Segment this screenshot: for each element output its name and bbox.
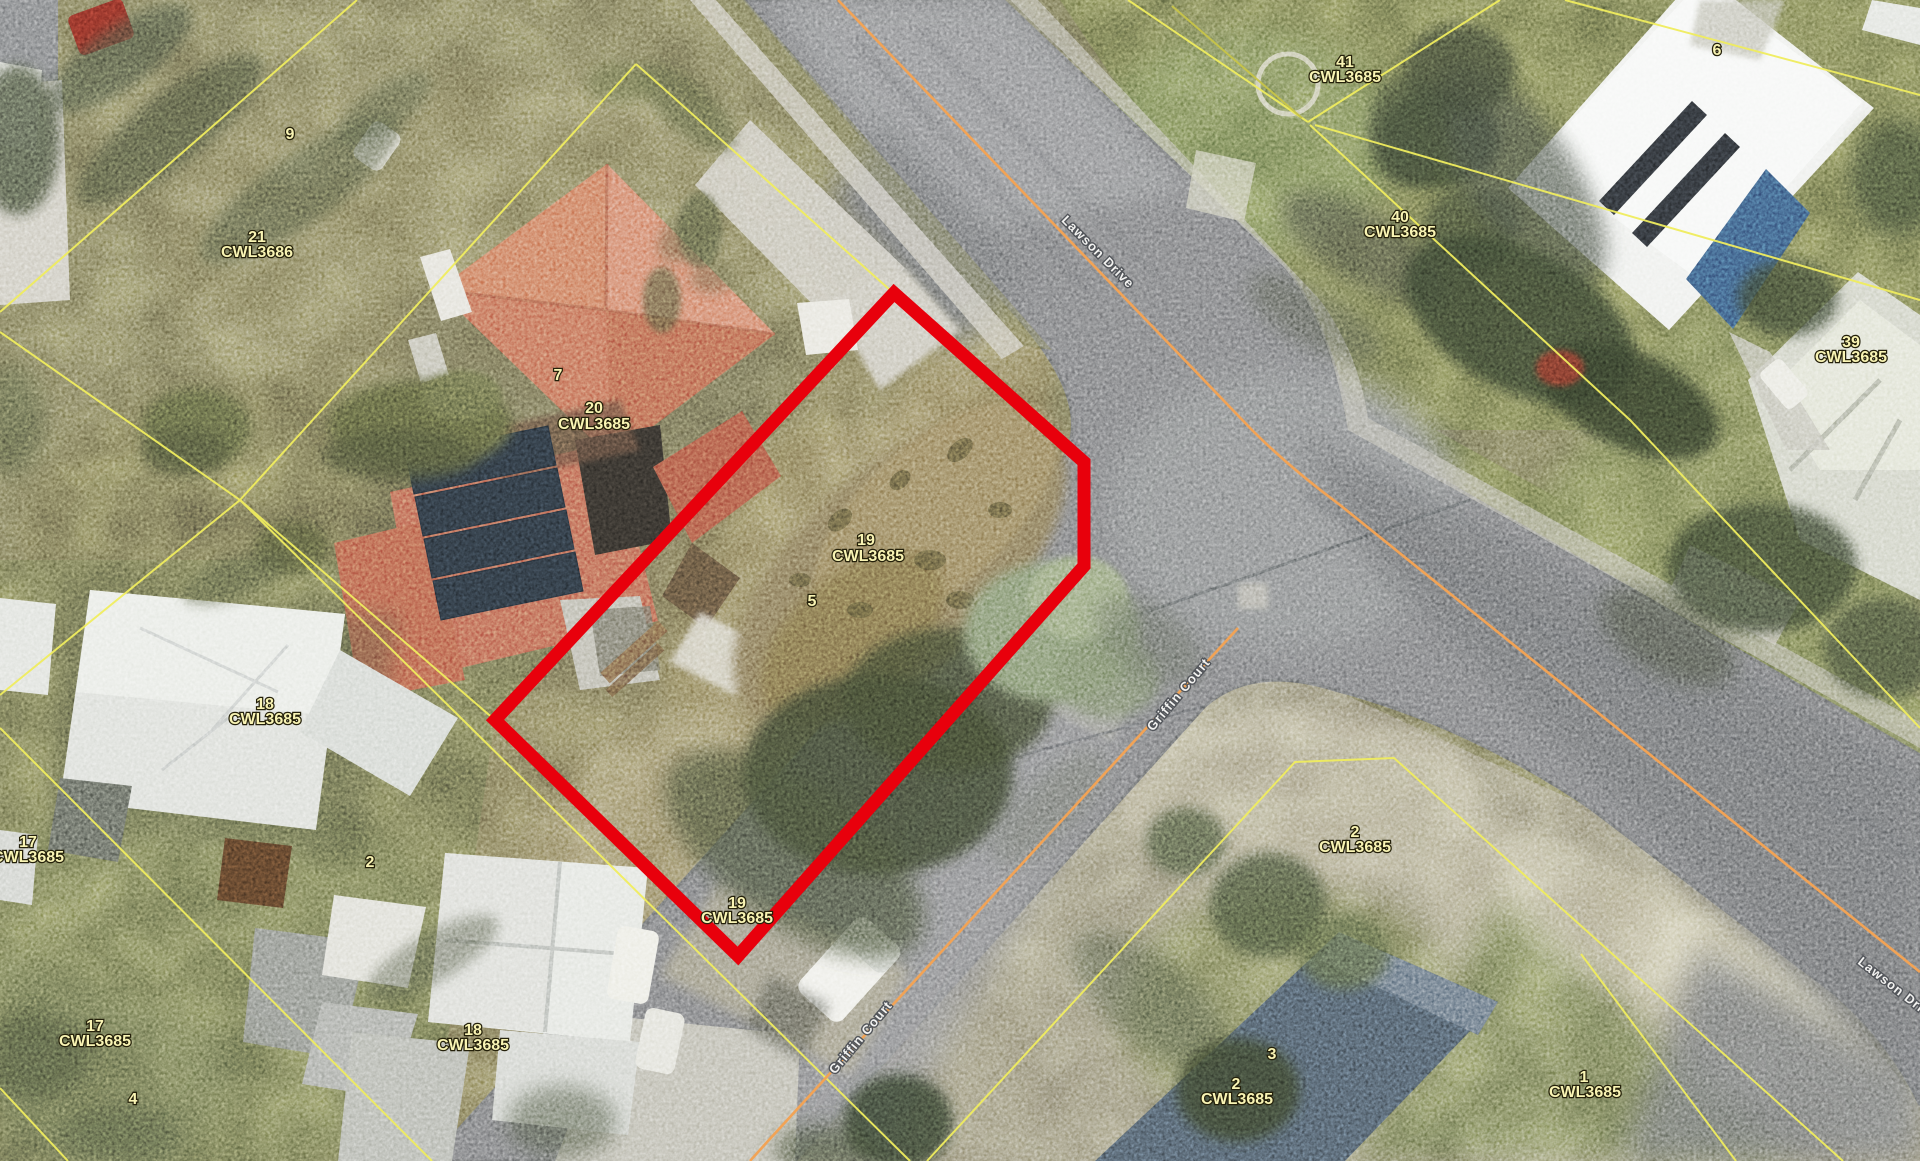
- svg-text:CWL3685: CWL3685: [1309, 69, 1381, 86]
- svg-text:6: 6: [1713, 42, 1722, 59]
- svg-text:CWL3685: CWL3685: [1364, 224, 1436, 241]
- svg-text:CWL3685: CWL3685: [1201, 1091, 1273, 1108]
- svg-text:20: 20: [585, 400, 603, 417]
- svg-text:3: 3: [1268, 1046, 1277, 1063]
- svg-text:CWL3685: CWL3685: [59, 1033, 131, 1050]
- svg-text:CWL3685: CWL3685: [1319, 839, 1391, 856]
- svg-text:CWL3685: CWL3685: [229, 711, 301, 728]
- svg-text:9: 9: [286, 126, 295, 143]
- svg-text:CWL3685: CWL3685: [701, 910, 773, 927]
- svg-text:19: 19: [857, 532, 875, 549]
- svg-text:4: 4: [129, 1091, 138, 1108]
- svg-text:CWL3685: CWL3685: [1549, 1084, 1621, 1101]
- svg-text:CWL3685: CWL3685: [437, 1037, 509, 1054]
- svg-text:CWL3685: CWL3685: [1815, 349, 1887, 366]
- svg-text:2: 2: [366, 854, 375, 871]
- svg-text:CWL3685: CWL3685: [558, 416, 630, 433]
- svg-text:CWL3685: CWL3685: [832, 548, 904, 565]
- svg-text:5: 5: [808, 593, 817, 610]
- svg-text:7: 7: [554, 367, 563, 384]
- svg-text:CWL3686: CWL3686: [221, 244, 293, 261]
- svg-text:CWL3685: CWL3685: [0, 849, 64, 866]
